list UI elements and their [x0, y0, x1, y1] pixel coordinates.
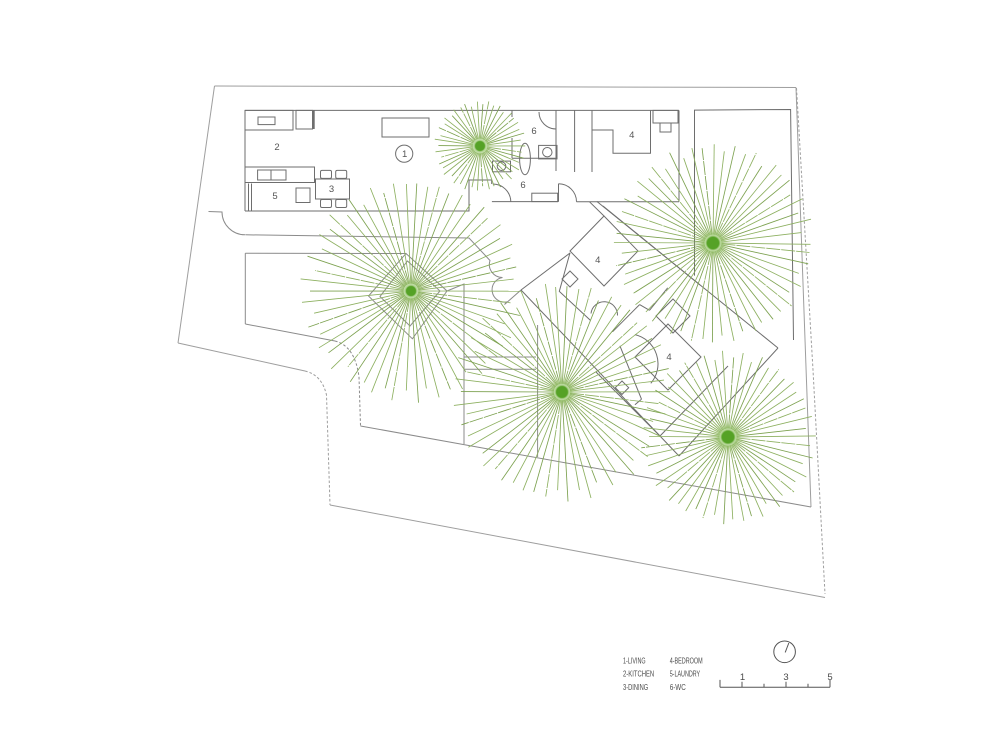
svg-text:4: 4	[629, 130, 634, 141]
svg-text:1: 1	[402, 149, 407, 160]
svg-text:4: 4	[595, 255, 600, 266]
svg-text:6: 6	[520, 180, 525, 191]
svg-text:6-WC: 6-WC	[670, 682, 686, 692]
svg-text:3-DINING: 3-DINING	[623, 682, 648, 692]
svg-text:4-BEDROOM: 4-BEDROOM	[670, 655, 703, 665]
svg-text:2-KITCHEN: 2-KITCHEN	[623, 669, 654, 679]
svg-text:6: 6	[531, 126, 536, 137]
svg-text:3: 3	[329, 184, 334, 195]
svg-text:3: 3	[783, 672, 788, 683]
svg-text:4: 4	[666, 352, 671, 363]
svg-text:1-LIVING: 1-LIVING	[623, 655, 646, 665]
svg-text:5: 5	[827, 672, 832, 683]
svg-text:2: 2	[274, 142, 279, 153]
svg-text:5-LAUNDRY: 5-LAUNDRY	[670, 669, 701, 679]
svg-text:5: 5	[272, 191, 277, 202]
svg-text:1: 1	[740, 672, 745, 683]
